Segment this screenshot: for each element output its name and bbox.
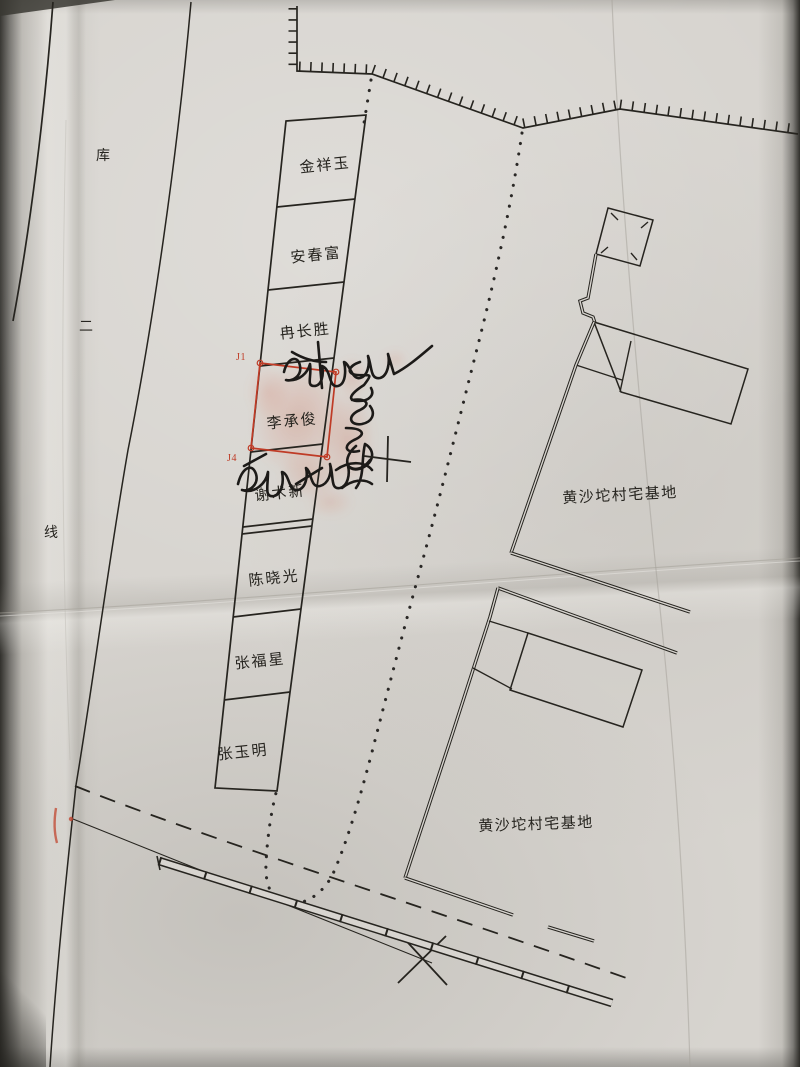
railway-line <box>157 856 612 1003</box>
railway-inner <box>159 861 612 1003</box>
hatch-ticks <box>523 104 620 123</box>
plot-divider <box>242 526 312 534</box>
building-divider <box>473 621 528 689</box>
survey-marker-j4: J4 <box>227 453 237 464</box>
upper-village-compound <box>511 208 748 612</box>
boundary-path <box>297 6 798 134</box>
hatch-ticks <box>299 66 371 69</box>
crease-lines <box>0 0 800 1067</box>
building-divider <box>620 341 631 392</box>
plot-owner-name: 陈晓光 <box>248 566 301 589</box>
boundary-char: 线 <box>44 525 58 541</box>
hatch-ticks <box>620 104 798 129</box>
red-fold-mark <box>55 808 57 843</box>
plot-divider <box>243 519 313 527</box>
inner-building-rect <box>510 633 642 727</box>
boundary-curve-outer <box>13 2 53 321</box>
boundary-char: 库 <box>96 148 110 164</box>
boundary-curve-inner <box>76 2 191 785</box>
plot-owner-name: 张玉明 <box>217 741 270 763</box>
survey-cross-marks <box>364 436 447 985</box>
plot-owner-name: 安春富 <box>290 243 343 266</box>
area-label-upper: 黄沙坨村宅基地 <box>562 484 678 507</box>
survey-marker-j1: J1 <box>236 352 246 363</box>
hatch-ticks <box>373 69 523 123</box>
plot-owner-name: 张福星 <box>234 650 287 672</box>
photo-of-cadastral-sketch: 库 二 线 金祥玉 安春富 冉长胜 李承俊 谢术新 陈晓光 张福星 张玉明 <box>0 0 800 1067</box>
plot-divider <box>233 609 301 617</box>
area-label-lower: 黄沙坨村宅基地 <box>478 814 594 835</box>
building-divider <box>576 365 622 380</box>
crease-line <box>612 0 690 1067</box>
crease-line <box>63 120 70 760</box>
map-drawing: 库 二 线 金祥玉 安春富 冉长胜 李承俊 谢术新 陈晓光 张福星 张玉明 <box>0 0 800 1067</box>
plot-divider <box>277 199 355 207</box>
plot-divider <box>224 692 290 700</box>
plot-owner-name: 金祥玉 <box>299 154 352 176</box>
plot-owner-name: 冉长胜 <box>279 320 332 342</box>
red-dot-mark <box>69 817 73 821</box>
dashed-boundary-line <box>75 786 632 980</box>
lower-village-compound <box>405 588 677 941</box>
boundary-char: 二 <box>79 320 93 335</box>
plot-divider <box>268 282 344 290</box>
hatched-boundary-line <box>293 6 798 134</box>
boundary-caption: 库 二 线 <box>44 148 110 541</box>
large-building-rect <box>594 322 748 424</box>
crease-line <box>0 558 800 613</box>
